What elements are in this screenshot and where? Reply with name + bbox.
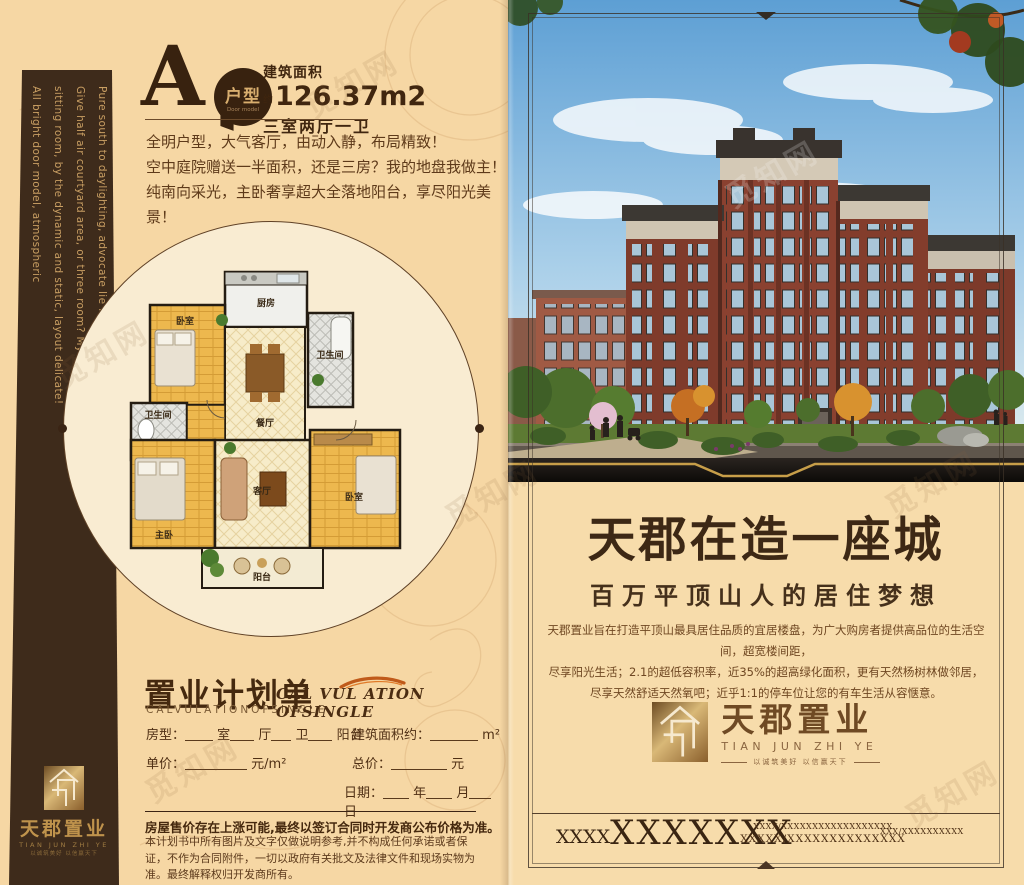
room-label-balcony: 阳台: [253, 571, 271, 583]
unit-description: 全明户型，大气客厅，由动入静，布局精致！ 空中庭院赠送一半面积，还是三房？我的地…: [146, 130, 508, 230]
room-label-master: 主卧: [155, 529, 173, 541]
tianjun-logo-icon: [652, 702, 708, 762]
tianjun-logo-icon: [44, 766, 84, 810]
desc-line: 空中庭院赠送一半面积，还是三房？我的地盘我做主！: [146, 155, 508, 180]
disclaimer-text: 本计划书中所有图片及文字仅做说明参考,并不构成任何承诺或者保证，不作为合同附件，…: [145, 834, 477, 884]
brand-name: 天郡置业: [721, 702, 879, 738]
bubble-sublabel: Door model: [227, 107, 259, 113]
tagline-dash: [721, 762, 747, 763]
paragraph-line: 天郡置业旨在打造平顶山最具居住品质的宜居楼盘，为广大购房者提供高品位的生活空间，…: [538, 620, 994, 662]
tagline-dash: [854, 762, 880, 763]
unit-letter: A: [141, 36, 205, 118]
sidebar-logo-en: TIAN JUN ZHI YE: [9, 841, 119, 849]
form-row-date: 日期： 年 月 日: [344, 782, 508, 820]
frame-ornament-top-icon: [756, 12, 776, 20]
year-label: 年: [413, 786, 426, 801]
room-label-bath-right: 卫生间: [316, 349, 343, 361]
circle-dot-right: [475, 424, 484, 433]
paragraph-line: 尽享阳光生活；2.1的超低容积率，近35%的超高绿化面积，更有天然杨树林做邻居，: [538, 662, 994, 683]
bubble-label: 户型: [225, 82, 261, 107]
sidebar-vertical-text: sitting room, by the dynamic and static,…: [48, 86, 68, 405]
total-unit: 元: [451, 757, 464, 772]
floorplan-drawing: 厨房 卧室 卫生间 餐厅 卫生间 主卧 客厅 卧室 阳台: [122, 258, 408, 603]
room-label-bath-left: 卫生间: [144, 409, 171, 421]
sidebar-logo-tagline: 以诚筑美好 以信赢天下: [9, 849, 119, 857]
price-unit: 元/m²: [251, 757, 286, 772]
subheadline: 百万平顶山人的居住梦想: [508, 576, 1024, 611]
month-label: 月: [456, 786, 469, 801]
unit-hall-label: 厅: [258, 728, 271, 743]
brand-name-en: TIAN JUN ZHI YE: [721, 740, 879, 753]
tagline-text: 以诚筑美好 以信赢天下: [753, 757, 847, 767]
room-label-bedroom-top: 卧室: [176, 315, 194, 327]
contact-line-3: XXX/XXXXXXXXXX: [880, 827, 964, 836]
desc-line: 纯南向采光，主卧奢享超大全落地阳台，享尽阳光美景！: [146, 180, 508, 230]
room-label-kitchen: 厨房: [257, 297, 275, 309]
circle-dot-left: [58, 424, 67, 433]
housetype-label: 房型：: [146, 728, 185, 743]
bubble-tail: [220, 111, 233, 131]
form-row-housetype: 房型： 室 厅 卫 阳台: [146, 724, 363, 743]
room-label-dining: 餐厅: [255, 417, 274, 429]
form-area-label: 建筑面积约：: [352, 728, 430, 743]
form-area-unit: m²: [482, 728, 500, 743]
room-label-living: 客厅: [252, 485, 271, 497]
area-value: 126.37m2: [275, 83, 426, 110]
price-label: 单价：: [146, 757, 185, 772]
disclaimer-divider: [145, 811, 476, 812]
brand-tagline: 以诚筑美好 以信赢天下: [721, 757, 879, 767]
form-row-total: 总价： 元: [352, 753, 464, 772]
approx-label: 约: [263, 91, 273, 106]
desc-line: 全明户型，大气客厅，由动入静，布局精致！: [146, 130, 508, 155]
area-block: 建筑面积 约 126.37m2 三室两厅一卫: [263, 62, 426, 137]
frame-ornament-bottom-icon: [757, 861, 775, 869]
area-label: 建筑面积: [263, 62, 426, 82]
left-page: All bright door model, atmospheric sitti…: [0, 0, 508, 885]
plan-form-subtitle-italic: CAL VUL ATION OFSINGLE: [276, 685, 508, 721]
sidebar-vertical-text: All bright door model, atmospheric: [26, 86, 46, 283]
body-paragraph: 天郡置业旨在打造平顶山最具居住品质的宜居楼盘，为广大购房者提供高品位的生活空间，…: [538, 620, 994, 704]
right-page: 天郡在造一座城 百万平顶山人的居住梦想 天郡置业旨在打造平顶山最具居住品质的宜居…: [508, 0, 1024, 885]
room-label-bedroom-right: 卧室: [345, 491, 363, 503]
brand-logo-block: 天郡置业 TIAN JUN ZHI YE 以诚筑美好 以信赢天下: [508, 702, 1024, 767]
headline: 天郡在造一座城: [508, 500, 1024, 570]
sidebar-logo-name: 天郡置业: [9, 814, 119, 841]
unit-bath-label: 卫: [295, 728, 308, 743]
contact-phone-prefix: XXXX: [556, 828, 610, 847]
swoosh-icon: [338, 674, 408, 690]
form-row-area: 建筑面积约： m²: [352, 724, 500, 743]
header-divider: [145, 119, 368, 120]
sidebar-logo-block: 天郡置业 TIAN JUN ZHI YE 以诚筑美好 以信赢天下: [9, 766, 119, 857]
date-label: 日期：: [344, 786, 383, 801]
form-row-price: 单价： 元/m²: [146, 753, 286, 772]
total-label: 总价：: [352, 757, 391, 772]
building-photo: [508, 0, 1024, 482]
property-brochure-poster: All bright door model, atmospheric sitti…: [0, 0, 1024, 885]
unit-room-label: 室: [217, 728, 230, 743]
